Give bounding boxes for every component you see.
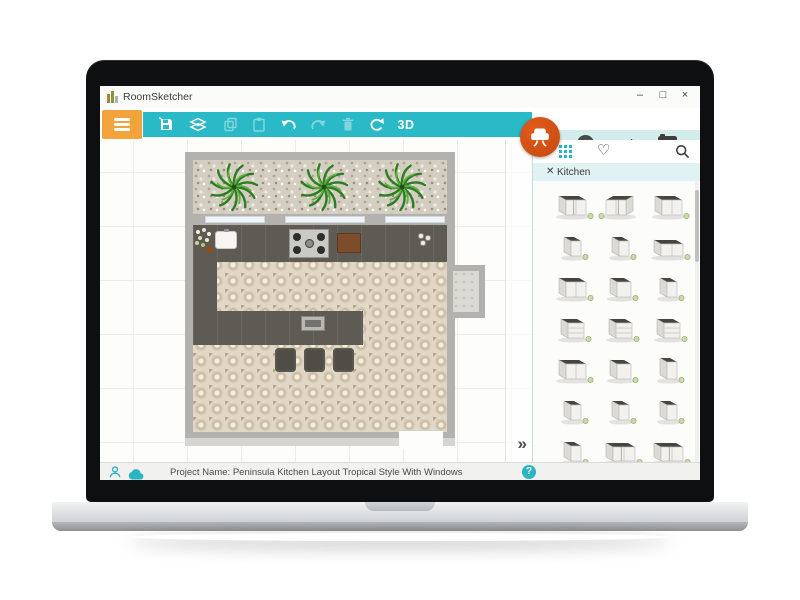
spice-jars[interactable] [418, 233, 434, 247]
laptop-notch [365, 502, 435, 511]
window-icon[interactable] [285, 216, 365, 223]
panel-scrollbar-thumb[interactable] [695, 190, 699, 262]
library-item-narrow[interactable] [646, 390, 692, 428]
wall-left [185, 152, 193, 438]
floors-button[interactable] [187, 115, 209, 134]
peninsula-counter[interactable] [193, 311, 363, 345]
floorplan-canvas[interactable]: » [100, 140, 532, 462]
view-3d-button[interactable]: 3D [393, 115, 419, 134]
bar-stool[interactable] [333, 348, 354, 372]
window-wall [193, 214, 447, 225]
grid-view-icon[interactable] [559, 145, 572, 158]
paste-button[interactable] [248, 115, 270, 134]
cutting-board[interactable] [337, 233, 361, 253]
library-grid [533, 181, 693, 462]
toolbar-teal-bar: 3D [143, 112, 532, 137]
library-item-wide[interactable] [646, 185, 692, 223]
expand-panel-button[interactable]: » [518, 434, 527, 454]
library-item-narrow[interactable] [646, 267, 692, 305]
palm-plant-icon[interactable] [375, 160, 429, 214]
window-icon[interactable] [205, 216, 265, 223]
title-bar: RoomSketcher – □ × [100, 86, 700, 109]
laptop-shadow [130, 533, 670, 541]
library-item-narrow[interactable] [598, 390, 644, 428]
library-item-corner-wide[interactable] [646, 431, 692, 462]
library-item-corner-left[interactable] [550, 185, 596, 223]
door-mat[interactable] [447, 265, 485, 318]
undo-button[interactable] [277, 115, 299, 134]
account-icon[interactable] [108, 465, 122, 480]
wall-top [185, 152, 455, 160]
project-name-text: Project Name: Peninsula Kitchen Layout T… [170, 467, 463, 478]
floorplan[interactable] [185, 152, 455, 448]
laptop-base-edge [52, 522, 748, 531]
view-3d-label: 3D [398, 118, 415, 132]
library-item-corner-wide[interactable] [598, 431, 644, 462]
library-item-medium[interactable] [598, 349, 644, 387]
copy-button[interactable] [219, 115, 241, 134]
kitchen-sink[interactable] [215, 231, 237, 249]
library-item-drawers[interactable] [646, 308, 692, 346]
library-item-drawers[interactable] [550, 308, 596, 346]
cooktop[interactable] [289, 229, 329, 258]
palm-plant-icon[interactable] [297, 160, 351, 214]
furniture-mode-button[interactable] [520, 117, 560, 157]
library-item-wide-low[interactable] [646, 226, 692, 264]
laptop-base [52, 502, 748, 522]
help-button[interactable]: ? [522, 465, 536, 479]
rotate-button[interactable] [365, 115, 387, 134]
item-library-panel: ♡ ✕ Kitchen [532, 140, 700, 462]
library-item-narrow[interactable] [550, 431, 596, 462]
door-opening [399, 430, 443, 449]
cloud-sync-icon[interactable] [128, 467, 145, 480]
app-logo-icon [107, 91, 118, 103]
window-title: RoomSketcher [123, 91, 192, 103]
library-item-wide[interactable] [550, 349, 596, 387]
app-window: RoomSketcher – □ × [100, 86, 700, 480]
collapse-strip: » [505, 140, 532, 462]
library-item-narrow[interactable] [550, 390, 596, 428]
armchair-icon [528, 125, 552, 149]
search-icon[interactable] [675, 144, 690, 164]
bar-stool[interactable] [304, 348, 325, 372]
library-item-narrow[interactable] [598, 226, 644, 264]
close-button[interactable]: × [677, 89, 693, 101]
peninsula-sink[interactable] [301, 316, 325, 331]
save-button[interactable] [155, 115, 177, 134]
library-item-wide[interactable] [550, 267, 596, 305]
status-bar: Project Name: Peninsula Kitchen Layout T… [100, 462, 700, 480]
library-item-drawers[interactable] [598, 308, 644, 346]
library-item-corner-front[interactable] [598, 185, 644, 223]
library-item-narrow[interactable] [550, 226, 596, 264]
hamburger-menu-button[interactable] [102, 110, 142, 139]
maximize-button[interactable]: □ [655, 89, 671, 101]
flower-pot[interactable] [194, 228, 216, 256]
redo-button[interactable] [307, 115, 329, 134]
delete-button[interactable] [337, 115, 359, 134]
favorites-heart-icon[interactable]: ♡ [597, 141, 610, 159]
remove-filter-icon[interactable]: ✕ [546, 166, 554, 177]
toolbar: 3D + [100, 108, 700, 140]
category-filter: ✕ Kitchen [533, 163, 700, 181]
gravel-bed[interactable] [193, 160, 447, 214]
filter-label: Kitchen [557, 167, 590, 178]
palm-plant-icon[interactable] [207, 160, 261, 214]
minimize-button[interactable]: – [632, 89, 648, 101]
library-item-medium[interactable] [598, 267, 644, 305]
window-icon[interactable] [385, 216, 445, 223]
bar-stool[interactable] [275, 348, 296, 372]
page-background: RoomSketcher – □ × [0, 0, 800, 600]
library-item-narrow-tall[interactable] [646, 349, 692, 387]
